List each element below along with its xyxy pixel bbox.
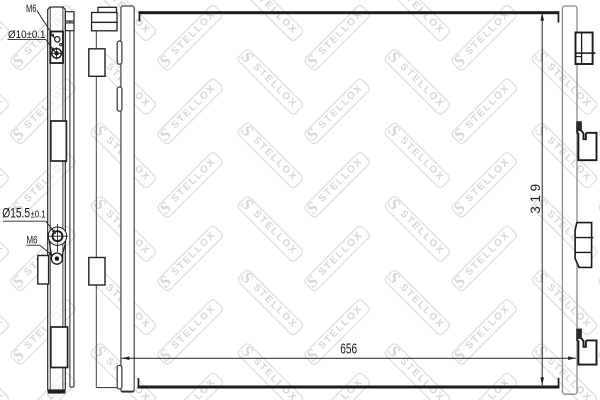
svg-text:±0.1: ±0.1	[31, 209, 46, 221]
svg-text:656: 656	[340, 340, 357, 357]
svg-text:Ø10±0.1: Ø10±0.1	[8, 29, 46, 41]
svg-text:M6: M6	[26, 3, 37, 15]
svg-text:Ø15.5: Ø15.5	[2, 205, 30, 221]
svg-text:319: 319	[528, 184, 543, 214]
svg-text:M6: M6	[27, 235, 38, 247]
